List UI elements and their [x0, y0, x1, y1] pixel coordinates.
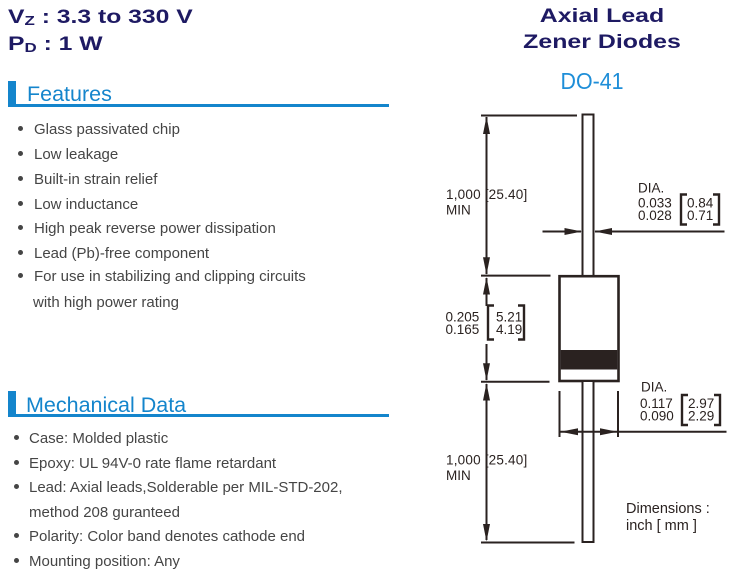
svg-text:DIA.: DIA.	[641, 380, 667, 395]
svg-text:inch [ mm ]: inch [ mm ]	[626, 518, 697, 534]
svg-text:0.71: 0.71	[687, 208, 713, 223]
svg-text:2.29: 2.29	[688, 409, 714, 424]
svg-text:4.19: 4.19	[496, 322, 522, 337]
svg-text:0.090: 0.090	[640, 409, 674, 424]
svg-text:MIN: MIN	[446, 203, 471, 218]
svg-text:1,000 [25.40]: 1,000 [25.40]	[446, 187, 527, 202]
svg-text:MIN: MIN	[446, 468, 471, 483]
svg-text:Dimensions :: Dimensions :	[626, 501, 710, 517]
svg-text:0.028: 0.028	[638, 208, 672, 223]
svg-text:DIA.: DIA.	[638, 181, 664, 196]
svg-text:0.165: 0.165	[446, 322, 480, 337]
svg-text:1,000 [25.40]: 1,000 [25.40]	[446, 453, 527, 468]
